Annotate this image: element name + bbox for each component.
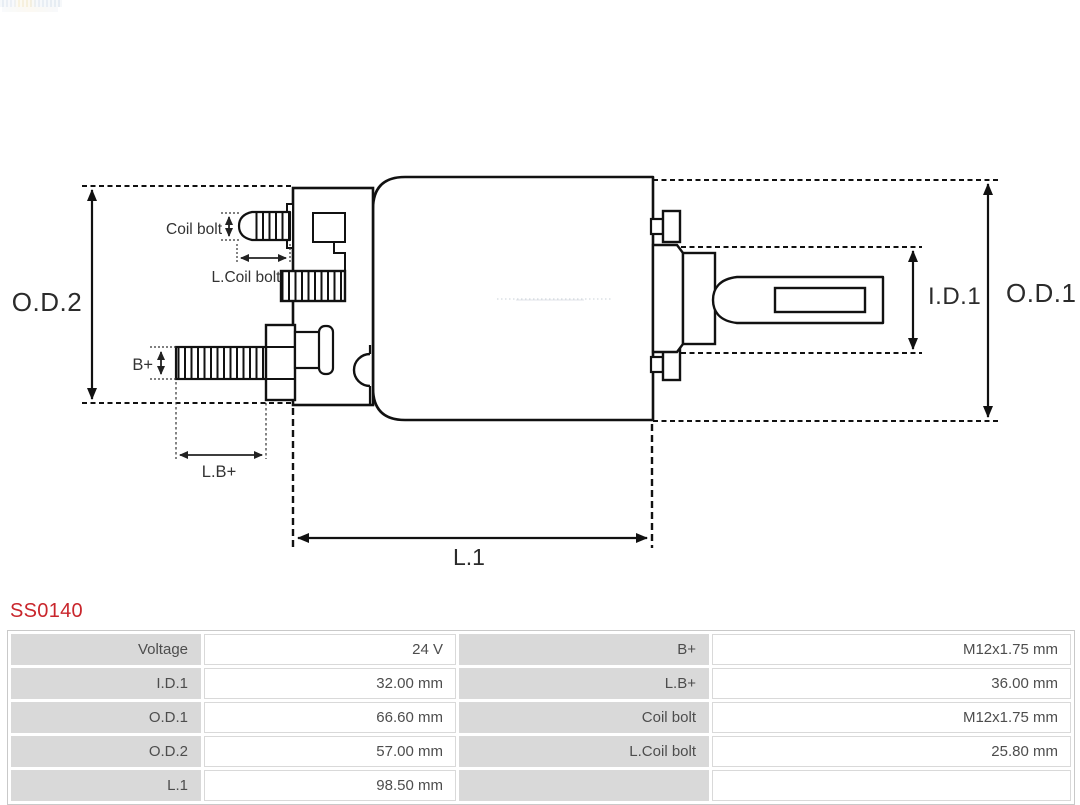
- dim-l-b-plus: L.B+: [176, 382, 266, 481]
- spec-label-cell: L.B+: [459, 668, 709, 699]
- solenoid-body: [373, 177, 653, 420]
- plunger-assembly: [653, 245, 883, 352]
- b-plus-washer: [319, 326, 333, 374]
- product-code-link[interactable]: SS0140: [10, 598, 83, 624]
- spec-table-body: Voltage 24 V B+ M12x1.75 mm I.D.1 32.00 …: [11, 634, 1071, 801]
- dim-label-id1: I.D.1: [928, 283, 981, 310]
- dim-label-l-b-plus: L.B+: [202, 463, 236, 481]
- spec-table-row: Voltage 24 V B+ M12x1.75 mm: [11, 634, 1071, 665]
- spec-table-row: O.D.2 57.00 mm L.Coil bolt 25.80 mm: [11, 736, 1071, 767]
- solenoid-dimension-diagram: O.D.2 O.D.1 I.D.1 L.1 Coil bolt L.Coil b…: [0, 0, 1080, 580]
- spec-label-cell: Coil bolt: [459, 702, 709, 733]
- spec-value-cell: 24 V: [204, 634, 456, 665]
- spec-value-cell: 32.00 mm: [204, 668, 456, 699]
- spec-value-cell: 66.60 mm: [204, 702, 456, 733]
- spec-value-cell: 57.00 mm: [204, 736, 456, 767]
- diagram-svg: O.D.2 O.D.1 I.D.1 L.1 Coil bolt L.Coil b…: [0, 0, 1080, 580]
- dim-l1: L.1: [293, 408, 652, 570]
- dim-label-l-coil-bolt: L.Coil bolt: [212, 269, 282, 286]
- spec-table: Voltage 24 V B+ M12x1.75 mm I.D.1 32.00 …: [7, 630, 1075, 805]
- dim-coil-bolt: Coil bolt: [166, 213, 241, 240]
- spec-table-row: O.D.1 66.60 mm Coil bolt M12x1.75 mm: [11, 702, 1071, 733]
- spec-label-cell: L.Coil bolt: [459, 736, 709, 767]
- dim-label-b-plus: B+: [132, 356, 153, 374]
- plunger-slot: [775, 288, 865, 312]
- coil-bolt-part: [239, 204, 293, 248]
- dim-label-od2: O.D.2: [12, 287, 82, 317]
- spec-label-cell: O.D.1: [11, 702, 201, 733]
- spec-table-row: I.D.1 32.00 mm L.B+ 36.00 mm: [11, 668, 1071, 699]
- spec-value-cell: 36.00 mm: [712, 668, 1071, 699]
- dim-l-coil-bolt: L.Coil bolt: [212, 244, 290, 286]
- spec-value-cell: [712, 770, 1071, 801]
- spec-label-cell: [459, 770, 709, 801]
- dim-b-plus: B+: [132, 347, 176, 379]
- spec-value-cell: 25.80 mm: [712, 736, 1071, 767]
- dim-label-od1: O.D.1: [1006, 278, 1076, 308]
- spec-label-cell: B+: [459, 634, 709, 665]
- spec-table-row: L.1 98.50 mm: [11, 770, 1071, 801]
- spec-label-cell: Voltage: [11, 634, 201, 665]
- spec-label-cell: O.D.2: [11, 736, 201, 767]
- b-plus-nut: [266, 325, 295, 400]
- spec-label-cell: L.1: [11, 770, 201, 801]
- dim-label-coil-bolt: Coil bolt: [166, 221, 223, 238]
- dim-label-l1: L.1: [453, 544, 485, 570]
- spec-value-cell: M12x1.75 mm: [712, 634, 1071, 665]
- spec-value-cell: M12x1.75 mm: [712, 702, 1071, 733]
- spec-label-cell: I.D.1: [11, 668, 201, 699]
- coil-bolt-thread-block: [281, 271, 345, 301]
- spec-value-cell: 98.50 mm: [204, 770, 456, 801]
